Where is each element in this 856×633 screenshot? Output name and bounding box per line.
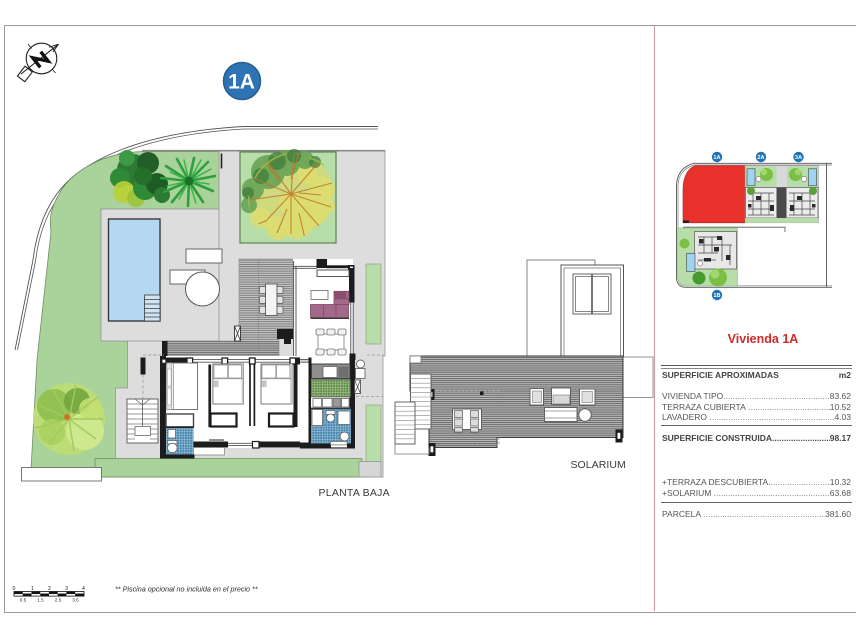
svg-text:1B: 1B [713,293,720,299]
svg-text:2A: 2A [757,155,764,161]
svg-text:3: 3 [65,586,68,592]
svg-text:0.5: 0.5 [20,598,27,603]
svg-text:** Piscina opcional no incluid: ** Piscina opcional no incluida en el pr… [115,585,258,594]
svg-text:1A: 1A [228,71,255,94]
svg-text:1.5: 1.5 [37,598,44,603]
svg-text:SOLARIUM: SOLARIUM [571,459,626,471]
svg-text:PLANTA BAJA: PLANTA BAJA [319,487,390,499]
svg-text:1A: 1A [713,155,720,161]
svg-text:4: 4 [82,586,85,592]
svg-text:2.5: 2.5 [55,598,62,603]
svg-text:1: 1 [31,586,34,592]
svg-text:3A: 3A [795,155,802,161]
svg-text:2: 2 [48,586,51,592]
svg-text:0: 0 [13,586,16,592]
svg-text:3.5: 3.5 [72,598,79,603]
